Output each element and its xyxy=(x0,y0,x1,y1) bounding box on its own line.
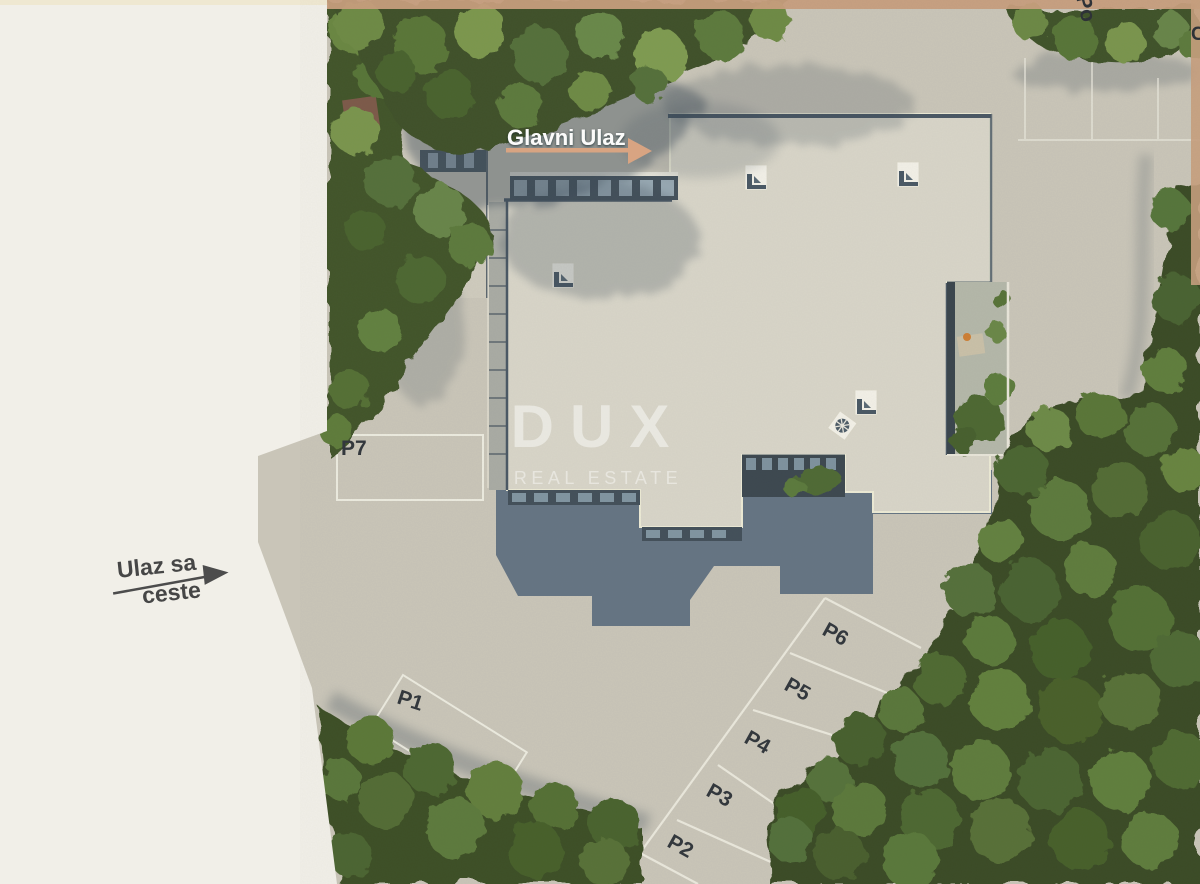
cream-margin xyxy=(0,0,337,884)
cream-margin-top-tint xyxy=(0,0,327,5)
watermark-tagline: REAL ESTATE xyxy=(514,468,682,488)
site-plan-canvas: DUX REAL ESTATE Glavni Ulaz Ulaz sa cest… xyxy=(0,0,1200,884)
edge-label-partial: C xyxy=(1191,24,1200,45)
watermark-brand: DUX xyxy=(511,393,686,460)
main-entrance-label: Glavni Ulaz xyxy=(507,125,626,150)
site-plan: DUX REAL ESTATE Glavni Ulaz Ulaz sa cest… xyxy=(0,0,1200,884)
watermark: DUX REAL ESTATE xyxy=(511,393,686,488)
parking-spot-label-p7: P7 xyxy=(341,437,367,460)
